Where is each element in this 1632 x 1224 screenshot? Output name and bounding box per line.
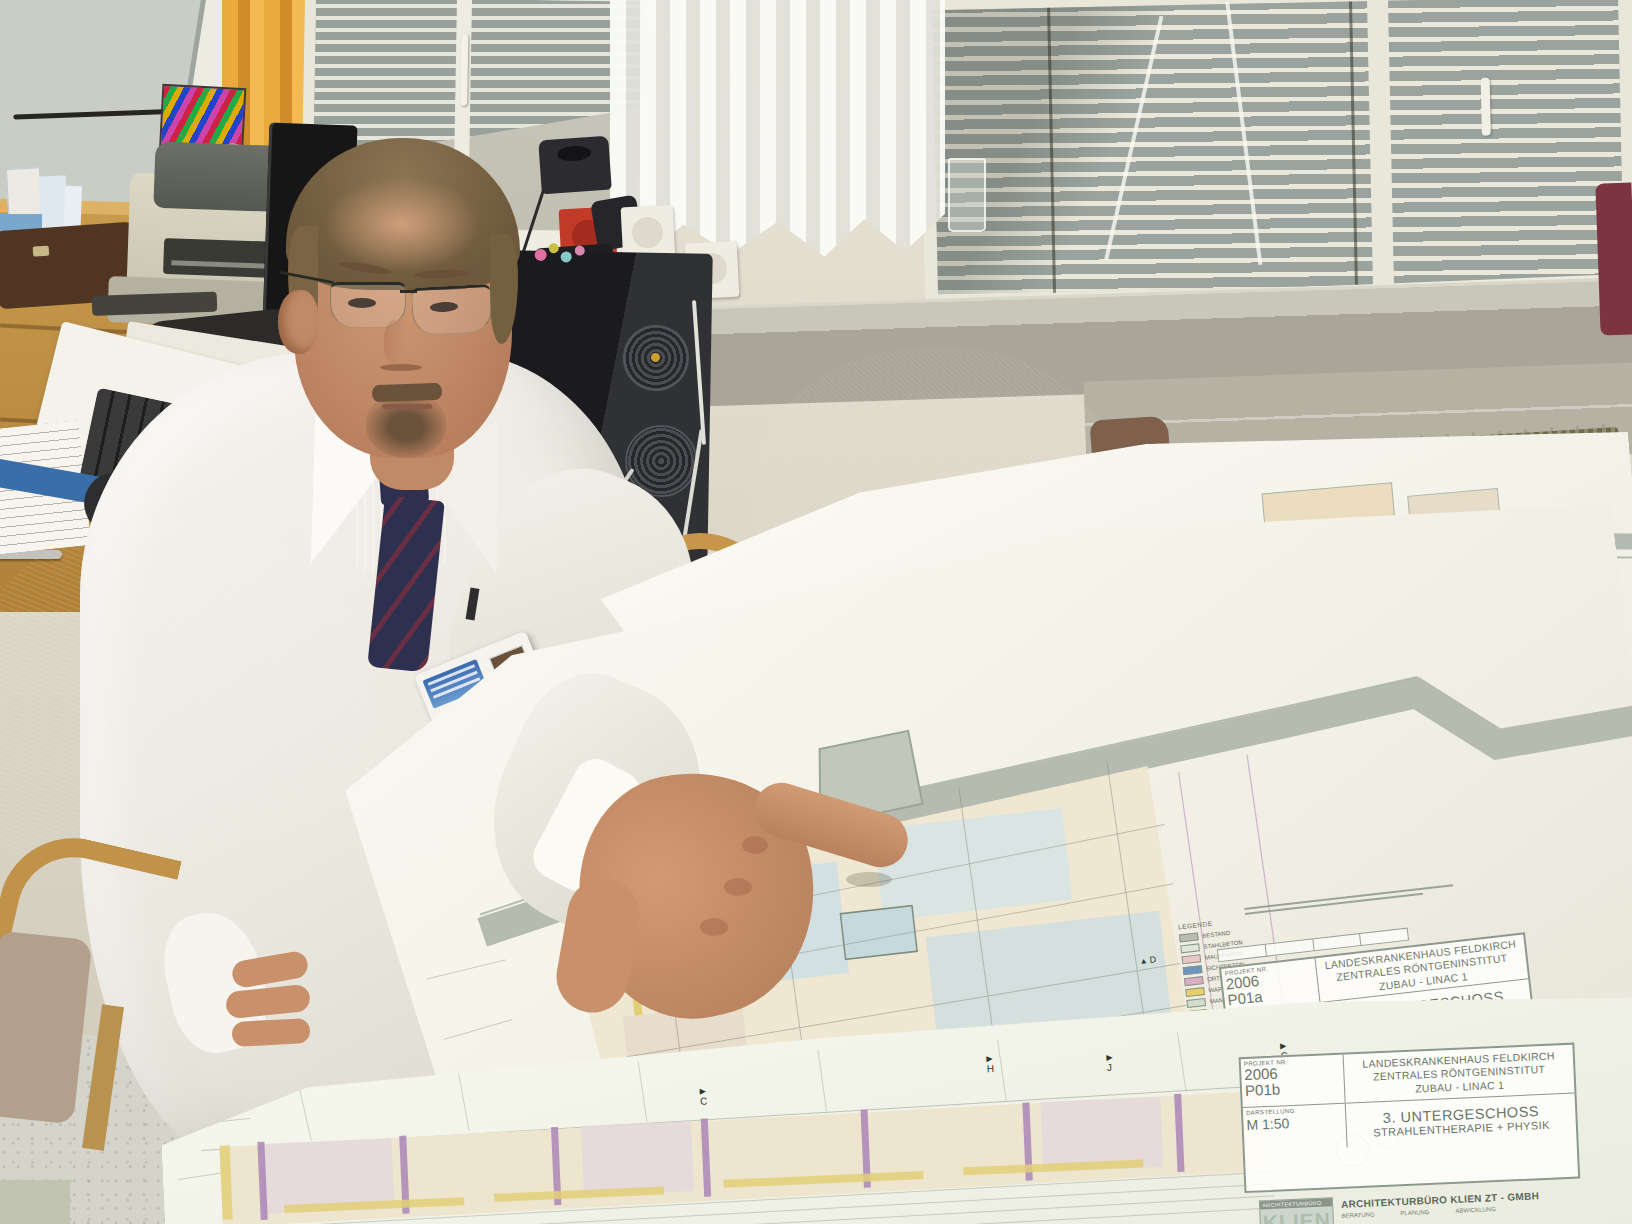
- legend-swatch: [1185, 987, 1205, 997]
- grid-marker: ▶H: [986, 1052, 995, 1074]
- finger-shadow: [846, 872, 892, 887]
- grid-marker-icon: ▶: [699, 1087, 706, 1096]
- glasses-lens: [411, 284, 493, 336]
- window-handle: [460, 34, 468, 106]
- floor-corner: [0, 1180, 70, 1224]
- legend-swatch: [1186, 997, 1206, 1007]
- knuckle: [742, 836, 768, 854]
- knuckle: [724, 878, 752, 896]
- window-handle: [1481, 78, 1491, 136]
- grid-marker: ▶C: [699, 1084, 708, 1106]
- glasses-bridge: [400, 290, 417, 293]
- grid-marker-icon: ▶: [1280, 1041, 1287, 1050]
- scale-cell: DARSTELLUNG M 1:50: [1243, 1104, 1348, 1152]
- ear: [278, 290, 318, 354]
- title-block-strahlentherapie: PROJEKT NR. 2006 P01b LANDESKRANKENHAUS …: [1239, 1043, 1581, 1194]
- cable-cluster: [530, 237, 621, 279]
- grid-marker: ▲D: [1139, 954, 1156, 966]
- hair: [490, 234, 518, 344]
- grid-marker: ▶J: [1106, 1051, 1115, 1073]
- knuckle: [700, 918, 728, 936]
- klien-logo: ARCHITEKTURBÜRO KLIEN: [1259, 1197, 1335, 1224]
- office-photo-scene: Dr. Alexander de VRIES: [0, 0, 1632, 1224]
- legend-swatch: [1184, 976, 1204, 986]
- grid-marker-icon: ▲: [1139, 956, 1148, 966]
- head: [286, 138, 528, 472]
- grid-marker-icon: ▶: [1106, 1053, 1113, 1062]
- plan-room: [581, 1121, 694, 1196]
- cooling-fan: [622, 324, 689, 391]
- drinking-glass: [948, 158, 986, 232]
- right-window: [919, 0, 1632, 307]
- legend-swatch: [1181, 954, 1201, 964]
- venetian-blind: [932, 0, 1624, 294]
- forehead: [324, 176, 480, 272]
- mouth: [382, 404, 432, 409]
- legend-swatch: [1180, 943, 1200, 953]
- nostril-shadow: [380, 364, 422, 371]
- legend-swatch: [1183, 965, 1203, 975]
- grid-marker-icon: ▶: [986, 1054, 993, 1063]
- phone-charging-dock: [538, 136, 612, 195]
- nose: [384, 320, 412, 364]
- chair-edge-right: [1595, 182, 1632, 335]
- sheet-title-cell: 3. UNTERGESCHOSS STRAHLENTHERAPIE + PHYS…: [1346, 1094, 1576, 1148]
- mustache: [372, 383, 443, 402]
- project-number-cell: PROJEKT NR. 2006 P01b: [1241, 1055, 1346, 1107]
- client-cell: LANDESKRANKENHAUS FELDKIRCH ZENTRALES RÖ…: [1344, 1045, 1575, 1103]
- legend-swatch: [1179, 932, 1199, 942]
- bag-buckle: [33, 246, 50, 257]
